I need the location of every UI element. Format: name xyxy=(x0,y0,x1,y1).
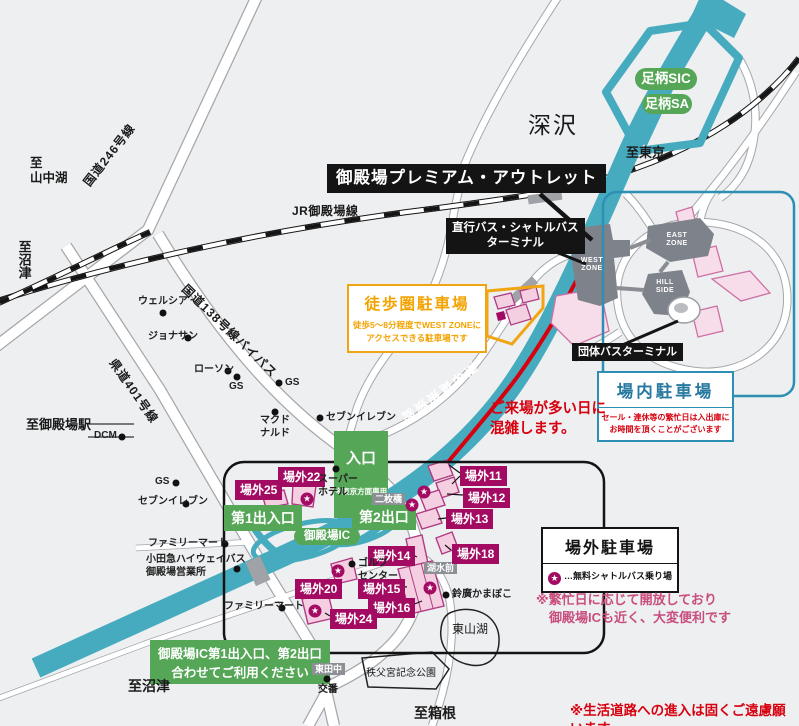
label-ashigara-sic: 足柄SIC xyxy=(635,68,697,90)
offsite-parking-label: 場外11 xyxy=(460,466,507,486)
onsite-parking-note: セール・連休等の繁忙日は入出庫に お時間を頂くことがございます xyxy=(599,408,732,440)
offsite-parking-label: 場外20 xyxy=(295,579,342,599)
poi-dot xyxy=(443,592,450,599)
offsite-parking-note: ※繁忙日に応じて開放しており 御殿場ICも近く、大変便利です xyxy=(536,591,731,627)
direction-yamanakako: 至 山中湖 xyxy=(30,156,68,186)
shuttle-stop-star-icon: ★ xyxy=(309,605,322,618)
poi-label: マクド ナルド xyxy=(260,415,290,440)
shuttle-stop-star-icon: ★ xyxy=(418,486,431,499)
poi-label: セブンイレブン xyxy=(138,496,208,509)
onsite-parking-panel: 場内駐車場 セール・連休等の繁忙日は入出庫に お時間を頂くことがございます xyxy=(597,371,734,442)
poi-label: セブンイレブン xyxy=(326,412,396,425)
poi-dot xyxy=(276,380,283,387)
poi-label: ゴルフ センター xyxy=(358,558,398,583)
poi-label: GS xyxy=(229,381,243,394)
walking-parking-note: 徒歩5〜8分程度でWEST ZONEに アクセスできる駐車場です xyxy=(351,319,483,345)
poi-dot xyxy=(324,676,331,683)
offsite-parking-panel: 場外駐車場 ★…無料シャトルバス乗り場 xyxy=(541,527,679,593)
poi-label: 小田急ハイウェイバス 御殿場営業所 xyxy=(146,554,246,579)
congestion-note: ご来場が多い日に 混雑します。 xyxy=(490,400,606,439)
poi-label: DCM xyxy=(94,430,117,443)
east-zone-label: EAST ZONE xyxy=(662,232,692,249)
poi-label: スーパー ホテル xyxy=(318,474,358,499)
label-ashigara-sa: 足柄SA xyxy=(642,94,692,114)
group-bus-terminal-label: 団体バスターミナル xyxy=(572,343,683,361)
poi-dot xyxy=(317,415,324,422)
poi-dot xyxy=(119,434,126,441)
place-higashiyama-lake: 東山湖 xyxy=(452,622,488,636)
shuttle-stop-star-icon: ★ xyxy=(301,493,314,506)
offsite-parking-title: 場外駐車場 xyxy=(543,529,677,564)
local-roads-warning: ※生活道路への進入は固くご遠慮願います xyxy=(570,702,799,726)
direction-tokyo: 至東京 xyxy=(626,145,665,161)
poi-label: GS xyxy=(155,476,169,489)
intersection-higashi-tanaka: 東田中 xyxy=(312,663,345,675)
poi-label: 交番 xyxy=(318,684,338,697)
walking-parking-title: 徒歩圏駐車場 xyxy=(351,292,483,314)
outlet-title-label: 御殿場プレミアム・アウトレット xyxy=(327,164,606,193)
poi-label: GS xyxy=(285,377,299,390)
direction-numazu-left: 至沼津 xyxy=(16,240,32,279)
ic-usage-note: 御殿場IC第1出入口、第2出口 合わせてご利用ください xyxy=(150,640,330,684)
poi-dot xyxy=(234,374,241,381)
poi-label: ウェルシア xyxy=(138,296,188,309)
onsite-parking-title: 場内駐車場 xyxy=(599,373,732,408)
poi-label: ジョナサン xyxy=(148,331,198,344)
place-chichibu-park: 秩父宮記念公園 xyxy=(366,668,436,680)
offsite-parking-label: 場外25 xyxy=(235,480,282,500)
shuttle-star-legend-icon: ★ xyxy=(548,572,561,585)
offsite-parking-label: 場外18 xyxy=(452,544,499,564)
shuttle-stop-star-icon: ★ xyxy=(424,582,437,595)
direction-hakone: 至箱根 xyxy=(414,705,456,722)
direction-numazu-bottom: 至沼津 xyxy=(128,678,170,695)
place-fukasawa: 深沢 xyxy=(528,112,578,140)
gotemba-outlet-access-map: 至 山中湖 至沼津 国道246号線 JR御殿場線 深沢 至東京 足柄SIC 足柄… xyxy=(0,0,799,726)
offsite-legend-text: …無料シャトルバス乗り場 xyxy=(564,571,672,581)
west-zone-label: WEST ZONE xyxy=(577,257,607,274)
poi-label: ファミリーマート xyxy=(224,601,304,614)
gate1-label: 第1出入口 xyxy=(224,505,302,531)
poi-dot xyxy=(160,310,167,317)
poi-dot xyxy=(333,466,340,473)
shuttle-stop-star-icon: ★ xyxy=(332,565,345,578)
shuttle-stop-star-icon: ★ xyxy=(406,499,419,512)
hill-side-label: HILL SIDE xyxy=(650,279,680,296)
poi-label: ファミリーマート xyxy=(148,538,228,551)
poi-dot xyxy=(349,561,356,568)
offsite-parking-label: 場外24 xyxy=(330,609,377,629)
poi-dot xyxy=(173,480,180,487)
walking-parking-panel: 徒歩圏駐車場 徒歩5〜8分程度でWEST ZONEに アクセスできる駐車場です xyxy=(347,284,487,353)
road-label-jr-gotemba-line: JR御殿場線 xyxy=(292,204,358,218)
offsite-parking-label: 場外12 xyxy=(463,488,510,508)
shuttle-bus-terminal-label: 直行バス・シャトルバス ターミナル xyxy=(446,218,585,254)
poi-label: ローソン xyxy=(194,364,234,377)
direction-gotemba-station: 至御殿場駅 xyxy=(26,417,91,433)
entrance-title: 入口 xyxy=(334,451,388,468)
offsite-parking-label: 場外13 xyxy=(446,509,493,529)
gotemba-ic-label: 御殿場IC xyxy=(294,528,360,545)
intersection-nimaibashi: 二枚橋 xyxy=(372,493,405,505)
poi-label: 鈴廣かまぼこ xyxy=(452,589,512,602)
